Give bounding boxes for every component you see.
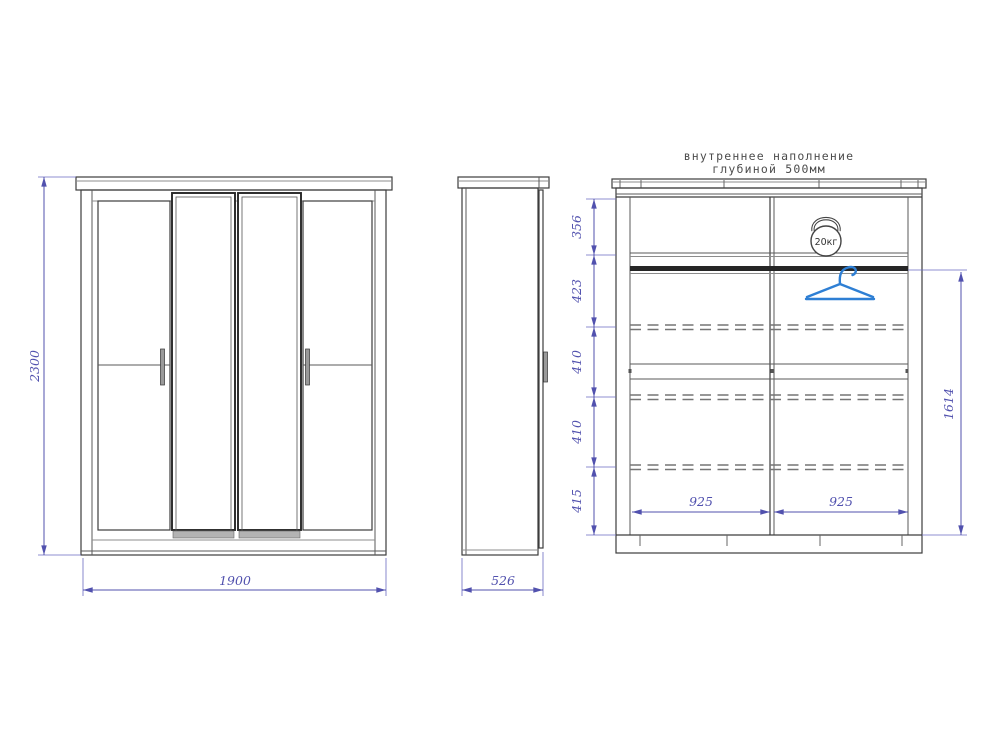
dim-section-height-3: 410 [569, 420, 584, 445]
title-line-1: внутреннее наполнение [684, 149, 855, 163]
door-handle-left-icon [161, 349, 165, 385]
dim-side-depth-label: 526 [491, 573, 515, 588]
plinth-strip [239, 531, 300, 538]
title-line-2: глубиной 500мм [712, 162, 826, 176]
dim-section-height-2: 410 [569, 350, 584, 375]
door-mirror-left [172, 193, 235, 530]
dim-section-height-0: 356 [569, 215, 584, 239]
dim-compartment-width-1: 925 [829, 494, 853, 509]
side-door-handle-icon [544, 352, 548, 382]
shelf-load-label: 20кг [815, 237, 838, 248]
wardrobe-technical-drawing: 2300 1900 526 [0, 0, 1000, 750]
dim-section-height-1: 423 [569, 279, 584, 304]
plinth-strip [173, 531, 234, 538]
dim-compartment-width-0: 925 [689, 494, 713, 509]
door-handle-right-icon [306, 349, 310, 385]
hanger-rod [630, 266, 908, 271]
front-cornice [76, 177, 392, 190]
dim-section-height-4: 415 [569, 489, 584, 514]
door-mirror-right [238, 193, 301, 530]
dim-front-width-label: 1900 [219, 573, 251, 588]
dim-front-height-label: 2300 [27, 350, 42, 383]
dim-hanging-height-label: 1614 [941, 388, 956, 420]
drawing-background [0, 0, 1000, 750]
side-cornice [458, 177, 549, 188]
internal-cornice [612, 179, 926, 188]
